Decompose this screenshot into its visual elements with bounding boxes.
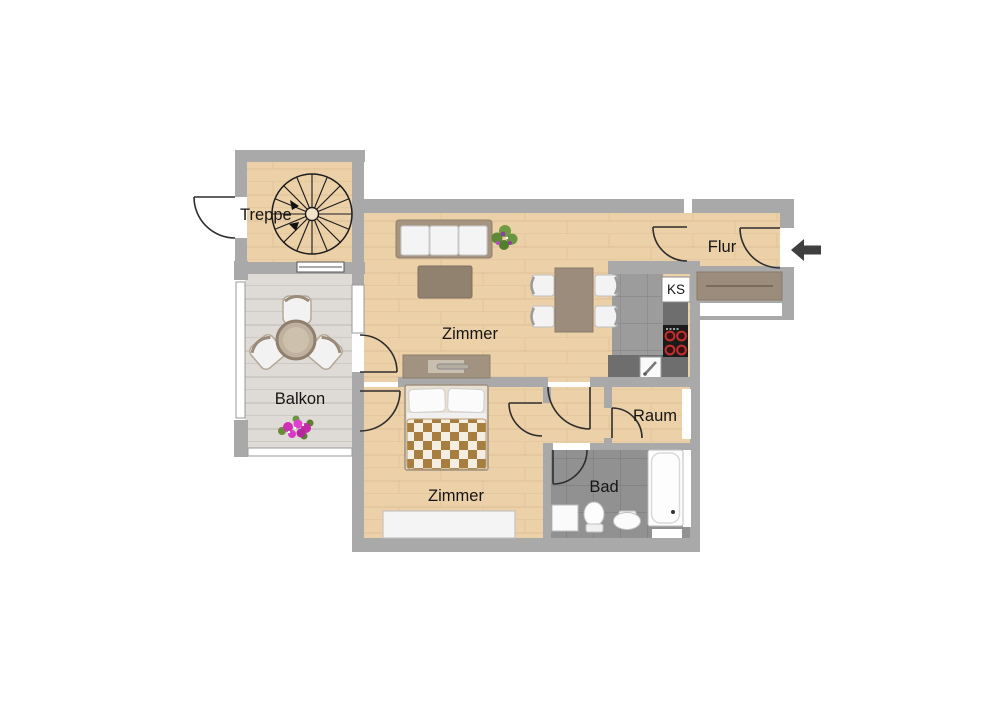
bathroom-sink-icon bbox=[552, 505, 578, 531]
label-flur: Flur bbox=[708, 238, 737, 256]
balcony-stub-bottomleft bbox=[234, 420, 248, 457]
kitchen-tile-floor bbox=[612, 274, 663, 355]
mid-wall-c bbox=[590, 377, 700, 387]
label-bad: Bad bbox=[589, 478, 618, 496]
mid-wall-a bbox=[352, 377, 358, 387]
balcony-bottom-rail bbox=[248, 448, 352, 456]
entrance-arrow-icon bbox=[791, 239, 821, 261]
living-balcony-window bbox=[352, 285, 364, 333]
flur-furniture bbox=[697, 272, 782, 316]
label-raum: Raum bbox=[633, 407, 677, 425]
label-zimmer-living: Zimmer bbox=[442, 325, 498, 343]
toilet-icon bbox=[584, 502, 604, 532]
bathroom-right-window bbox=[683, 450, 691, 527]
balcony-table-top bbox=[283, 327, 309, 353]
balcony-left-window bbox=[236, 282, 245, 418]
wardrobe-icon bbox=[383, 511, 515, 538]
label-balkon: Balkon bbox=[275, 390, 325, 408]
top-wall-notch bbox=[684, 199, 692, 213]
bathroom-top-stub bbox=[543, 443, 553, 450]
stairwell-left-wall-upper bbox=[235, 150, 247, 197]
sofa-icon bbox=[396, 220, 492, 258]
dining-table-icon bbox=[555, 268, 593, 332]
fridge-label: KS bbox=[667, 282, 685, 297]
bedroom-left-wall bbox=[352, 387, 364, 552]
living-left-wall-stub-upper bbox=[352, 274, 364, 285]
flur-kitchen-wall bbox=[608, 261, 700, 274]
balcony-door-gap bbox=[352, 333, 364, 372]
stairwell-window bbox=[297, 262, 344, 272]
bed-icon bbox=[405, 385, 488, 470]
bathtub-icon bbox=[648, 450, 683, 526]
stairwell-entry-door bbox=[194, 197, 235, 238]
floorplan-svg: KS bbox=[0, 0, 1000, 707]
bottom-outer-wall bbox=[352, 538, 700, 552]
bathroom-left-wall bbox=[543, 450, 551, 538]
hall-raum-stub-bottom bbox=[604, 438, 612, 450]
label-treppe: Treppe bbox=[240, 206, 292, 224]
coffee-table-icon bbox=[418, 266, 472, 298]
bathroom-bottom-window bbox=[652, 529, 682, 538]
label-zimmer-bedroom: Zimmer bbox=[428, 487, 484, 505]
tv-board-icon bbox=[403, 355, 490, 378]
flur-niche bbox=[700, 303, 782, 316]
floorplan-image: KS bbox=[0, 0, 1000, 707]
entrance-door-gap bbox=[780, 228, 794, 267]
faucet-base bbox=[643, 372, 647, 376]
stairwell-top-wall bbox=[235, 150, 365, 162]
raum-window bbox=[682, 389, 691, 439]
top-outer-wall bbox=[352, 199, 794, 213]
balcony-stub-topleft bbox=[234, 261, 248, 280]
hall-raum-stub-top bbox=[604, 387, 612, 408]
right-outer-wall-upper bbox=[780, 199, 794, 228]
right-wall-main bbox=[690, 274, 700, 552]
